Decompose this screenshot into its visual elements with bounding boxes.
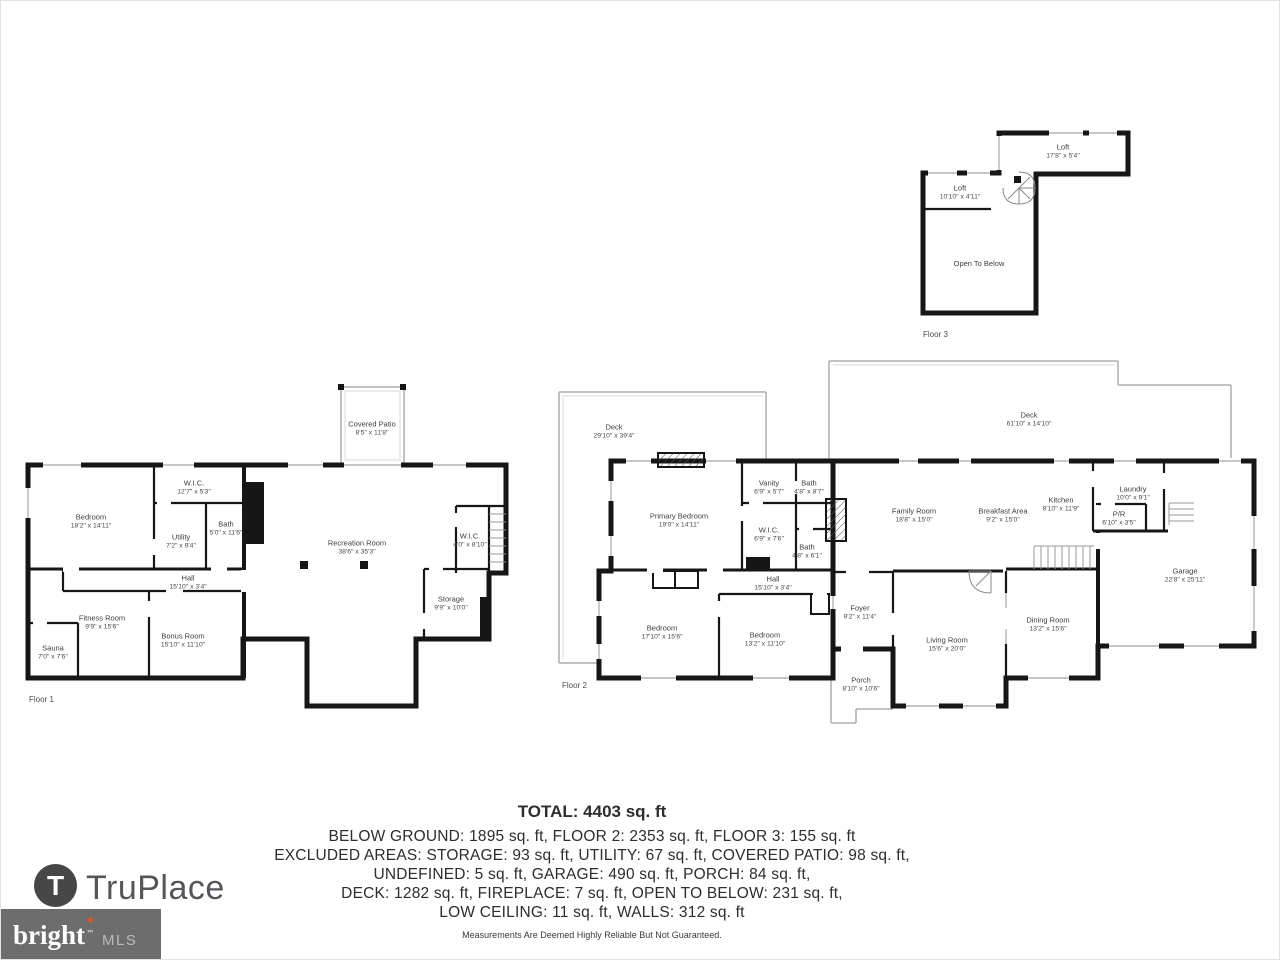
room-label-bonus-room: Bonus Room15'10" x 11'10" [161,632,205,651]
floor1-caption: Floor 1 [29,695,54,704]
room-label-open-to-below: Open To Below [954,259,1005,269]
room-label-porch: Porch8'10" x 10'6" [842,676,879,695]
room-label-bedroom-3: Bedroom13'2" x 11'10" [745,631,786,650]
mls-text: MLS [102,932,137,949]
room-label-primary-bedroom: Primary Bedroom19'0" x 14'11" [650,512,708,531]
room-label-wic-primary: W.I.C.6'9" x 7'6" [754,526,784,545]
room-label-bath-lower: Bath4'8" x 6'1" [792,543,822,562]
room-label-wic: W.I.C.12'7" x 5'3" [177,479,211,498]
floor2-walls [559,361,1254,723]
room-label-utility: Utility7'2" x 9'4" [166,533,196,552]
floor1-walls [28,384,506,706]
room-label-bedroom: Bedroom18'2" x 14'11" [71,513,112,532]
room-label-living-room: Living Room15'6" x 20'0" [926,636,968,655]
totals-line-1: BELOW GROUND: 1895 sq. ft, FLOOR 2: 2353… [52,827,1132,846]
room-label-powder-room: P/R6'10" x 3'5" [1102,510,1136,529]
room-label-vanity: Vanity6'9" x 5'7" [754,479,784,498]
totals-title: TOTAL: 4403 sq. ft [52,802,1132,822]
room-label-recreation-room: Recreation Room38'6" x 35'3" [328,539,386,558]
bright-mls-logo: bright✦™ MLS [1,909,161,960]
room-label-deck-right: Deck61'10" x 14'10" [1007,411,1052,430]
truplace-logo-text: TruPlace [86,869,225,908]
room-label-loft-left: Loft10'10" x 4'11" [940,184,981,203]
room-label-bath-upper: Bath4'8" x 8'7" [794,479,824,498]
bright-spark-icon: ✦ [86,914,95,927]
room-label-laundry: Laundry10'0" x 9'1" [1116,485,1150,504]
room-label-kitchen: Kitchen8'10" x 11'9" [1043,496,1080,515]
floor2-caption: Floor 2 [562,681,587,690]
room-label-family-room: Family Room18'8" x 15'0" [892,507,936,526]
room-label-storage: Storage9'9" x 10'0" [434,595,468,614]
room-label-hall-f2: Hall15'10" x 3'4" [754,575,791,594]
room-label-wic-2: W.I.C.4'0" x 8'10" [453,532,487,551]
disclaimer-text: Measurements Are Deemed Highly Reliable … [52,930,1132,940]
room-label-fitness-room: Fitness Room9'9" x 15'6" [79,614,125,633]
truplace-logo-icon: T [34,864,77,907]
room-label-loft-upper: Loft17'8" x 5'4" [1046,143,1080,162]
floor3-caption: Floor 3 [923,330,948,339]
room-label-garage: Garage22'8" x 25'11" [1165,567,1206,586]
room-label-covered-patio: Covered Patio8'5" x 11'8" [348,420,396,439]
room-label-dining-room: Dining Room13'2" x 15'6" [1026,616,1069,635]
room-label-deck-left: Deck29'10" x 39'4" [593,423,634,442]
trademark-symbol: ™ [87,930,93,936]
floorplan-page: Bedroom18'2" x 14'11" W.I.C.12'7" x 5'3"… [0,0,1280,960]
room-label-sauna: Sauna7'0" x 7'6" [38,644,68,663]
room-label-foyer: Foyer9'2" x 11'4" [844,604,877,623]
room-label-breakfast-area: Breakfast Area9'2" x 15'0" [978,507,1027,526]
totals-line-2: EXCLUDED AREAS: STORAGE: 93 sq. ft, UTIL… [52,846,1132,865]
floor3-walls [923,133,1128,313]
room-label-hall: Hall15'10" x 3'4" [169,574,206,593]
room-label-bath: Bath5'0" x 11'6" [210,520,243,539]
bright-wordmark: bright✦™ [13,920,93,951]
room-label-bedroom-2: Bedroom17'10" x 15'6" [641,624,682,643]
